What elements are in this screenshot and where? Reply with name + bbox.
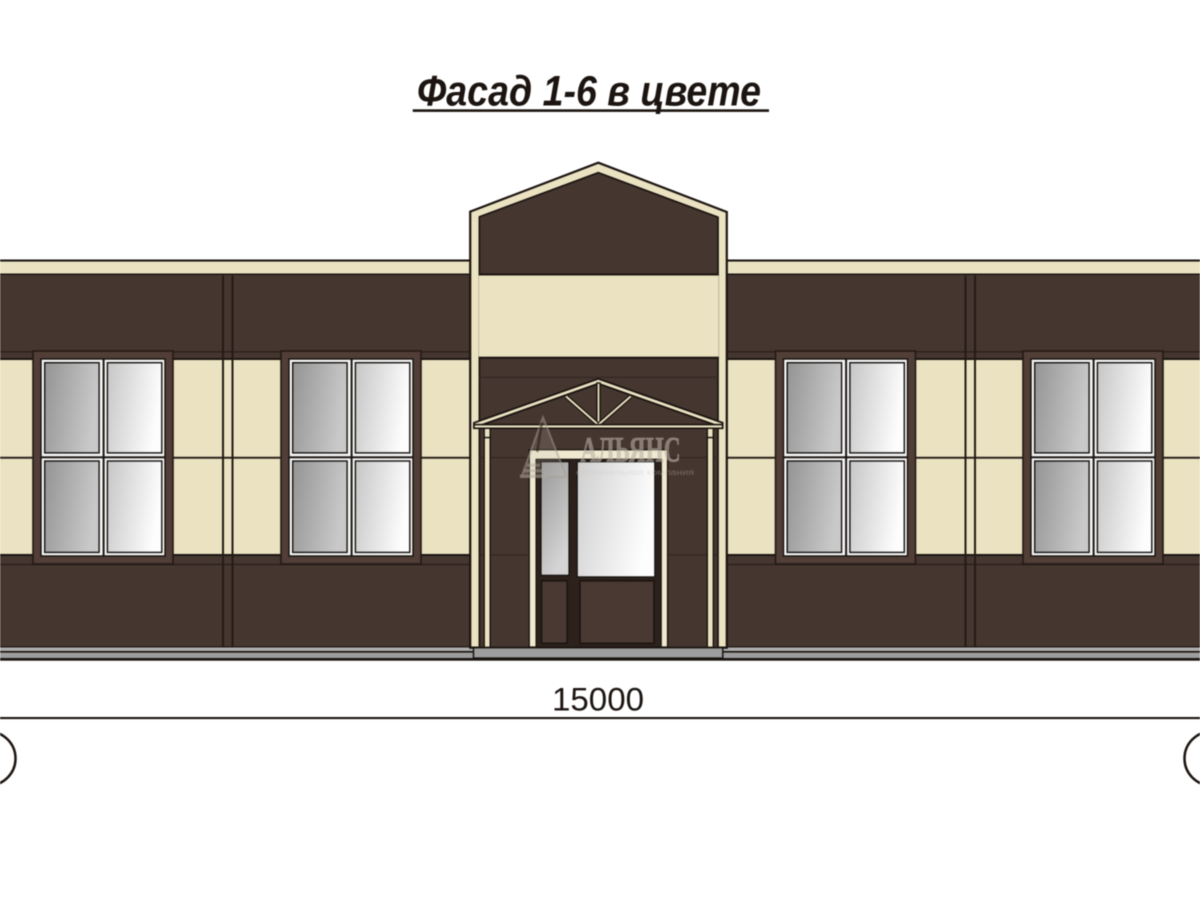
svg-text:АЛЬЯНС: АЛЬЯНС xyxy=(581,429,681,469)
svg-text:Фасад 1-6 в цвете: Фасад 1-6 в цвете xyxy=(417,67,761,115)
svg-text:15000: 15000 xyxy=(552,682,644,718)
svg-text:строительная компания: строительная компания xyxy=(576,467,694,477)
